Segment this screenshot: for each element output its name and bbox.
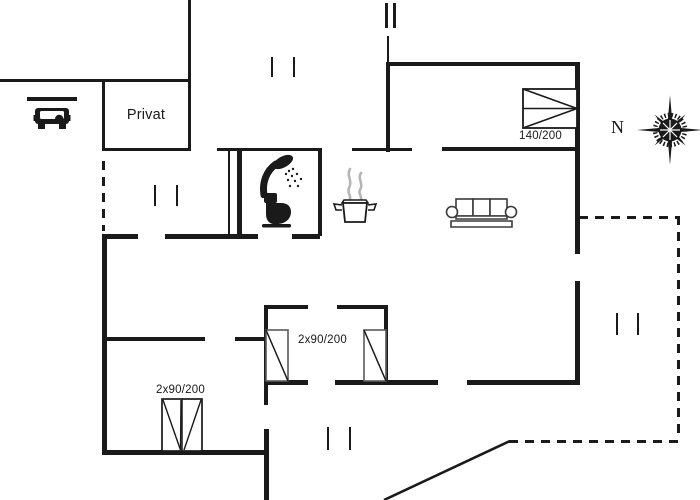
wall-stub-south <box>264 429 269 500</box>
bed-dimension-label-2x90-lower: 2x90/200 <box>156 384 205 396</box>
wall-vertical-entry <box>188 0 191 151</box>
window-tick <box>271 57 273 77</box>
carport-roof <box>27 97 77 101</box>
wall-hall-c <box>292 234 320 239</box>
chimney-mark <box>385 3 388 28</box>
window-tick <box>176 185 178 206</box>
wall-right-lower <box>575 281 580 385</box>
dashed-terrace-top <box>579 216 679 219</box>
wall-bath-left <box>237 148 242 237</box>
wall-privat-bottom <box>102 148 191 151</box>
wall-bedroom-ne-top <box>386 62 580 66</box>
window-tick <box>637 313 639 335</box>
room-label-privat: Privat <box>103 107 189 123</box>
wall-kitchen-top <box>352 148 412 151</box>
boundary-diagonal-line <box>378 434 518 500</box>
wall-hall-a <box>102 234 138 239</box>
window-tick <box>349 427 351 450</box>
bed-dimension-label-140: 140/200 <box>519 130 562 142</box>
dashed-terrace-right <box>677 216 680 436</box>
wall-vent-stub <box>387 36 389 63</box>
wall-south-right <box>467 380 577 385</box>
dashed-terrace-bottom <box>509 440 679 443</box>
window-tick <box>327 427 329 450</box>
sofa-icon <box>443 192 519 232</box>
wall-west <box>102 234 107 455</box>
single-bed-icon <box>265 329 290 382</box>
floor-plan: Privat 140/200 2x90/200 2x90/200 N <box>0 0 700 500</box>
wall-bath-top <box>217 148 322 151</box>
wall-bedroom-sw-top-b <box>235 337 266 341</box>
twin-bed-icon <box>161 398 203 453</box>
wall-bedrooms-top-left <box>264 305 308 309</box>
wall-bath-inner <box>228 148 230 237</box>
single-bed-icon <box>363 329 388 382</box>
toilet-icon <box>260 192 294 230</box>
wall-top-left <box>0 79 190 82</box>
wall-bath-right <box>318 148 322 236</box>
double-bed-icon <box>522 88 578 129</box>
bed-dimension-label-2x90-middle: 2x90/200 <box>298 334 347 346</box>
wall-bedroom-ne-bottom <box>442 147 577 151</box>
car-icon <box>33 103 71 130</box>
window-tick <box>154 185 156 206</box>
cooking-pot-icon <box>330 167 380 227</box>
compass-north-label: N <box>611 117 624 138</box>
compass-rose-icon <box>634 94 700 166</box>
dashed-opening-west <box>102 161 105 231</box>
window-tick <box>293 57 295 77</box>
wall-bedrooms-top-right <box>337 305 388 309</box>
window-tick <box>616 313 618 335</box>
wall-bedroom-ne-left <box>386 62 390 152</box>
wall-bedroom-sw-top-a <box>105 337 205 341</box>
wall-hall-b <box>165 234 258 239</box>
chimney-mark <box>393 3 396 28</box>
